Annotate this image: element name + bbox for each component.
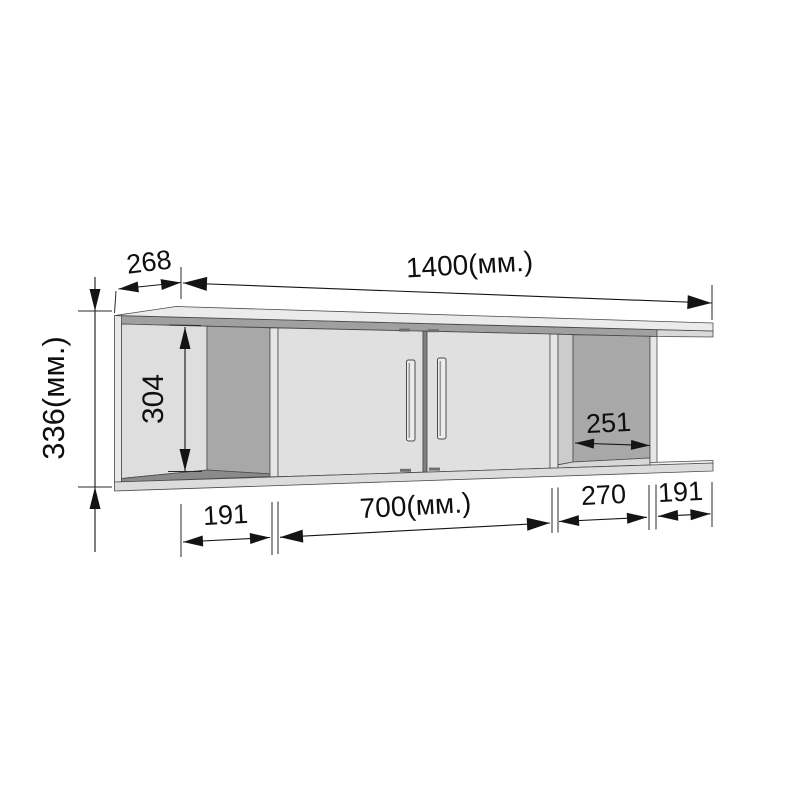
hinge-mark-top-left — [399, 329, 410, 332]
right-side-panel-edge — [650, 336, 657, 465]
dim-bottom-section-2: 700(мм.) — [359, 487, 472, 524]
left-compartment-back-panel — [207, 326, 270, 474]
diagram-canvas: 268 1400(мм.) 336(мм.) 304 251 — [0, 0, 800, 800]
dim-inner-height: 304 — [137, 374, 170, 424]
door-left — [278, 328, 423, 477]
divider-left-edge — [270, 328, 278, 477]
arrowhead-270-left — [559, 515, 579, 526]
dim-bottom-section-4: 191 — [657, 476, 704, 508]
arrowhead-191L-right — [250, 533, 270, 544]
arrowhead-1400-left — [183, 277, 207, 291]
door-handle-right — [438, 358, 447, 439]
dim-line-1400 — [183, 283, 712, 303]
arrowhead-336-top — [90, 289, 101, 311]
door-handle-left — [407, 360, 416, 441]
hinge-mark-bottom-right — [429, 468, 440, 471]
arrowhead-268-left — [119, 282, 139, 293]
right-compartment-side-face — [558, 334, 573, 465]
arrowhead-268-right — [161, 279, 181, 290]
dim-inner-depth-right: 251 — [585, 407, 632, 439]
arrowhead-191R-left — [658, 510, 678, 521]
hinge-mark-top-right — [428, 329, 439, 332]
divider-right-edge — [550, 334, 558, 468]
arrowhead-270-right — [627, 513, 647, 524]
ext-line-268-left — [115, 291, 117, 313]
arrowhead-700-left — [280, 530, 303, 543]
dim-bottom-section-1: 191 — [202, 499, 249, 531]
hinge-mark-bottom-left — [400, 469, 411, 472]
arrowhead-191L-left — [183, 536, 203, 547]
dim-bottom-section-3: 270 — [580, 479, 627, 511]
ext-line-304-top — [169, 325, 201, 326]
cabinet-dimension-drawing: 268 1400(мм.) 336(мм.) 304 251 — [0, 0, 800, 800]
dim-width-top: 1400(мм.) — [405, 245, 534, 283]
arrowhead-191R-right — [690, 509, 710, 520]
left-side-panel-edge — [115, 316, 122, 483]
door-gap — [423, 331, 427, 472]
dim-line-700 — [280, 523, 550, 537]
arrowhead-336-bottom — [90, 487, 101, 509]
cabinet — [115, 307, 714, 492]
dim-depth-top: 268 — [125, 244, 173, 279]
dim-height-left: 336(мм.) — [36, 336, 71, 460]
arrowhead-1400-right — [687, 295, 711, 309]
arrowhead-700-right — [527, 518, 550, 531]
